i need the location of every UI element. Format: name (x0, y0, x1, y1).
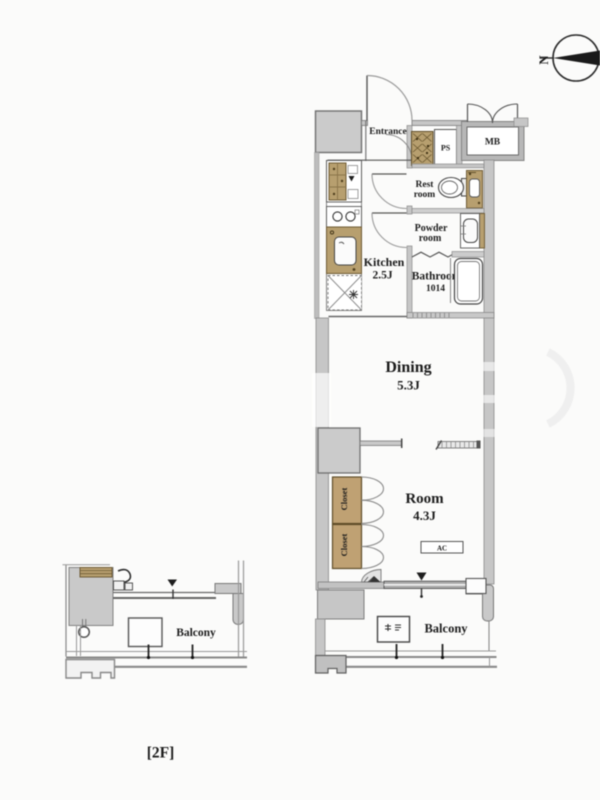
svg-text:Entrance: Entrance (369, 127, 406, 137)
svg-text:5.3J: 5.3J (397, 378, 420, 393)
svg-text:4.3J: 4.3J (413, 508, 436, 523)
svg-text:Closet: Closet (339, 534, 349, 557)
svg-text:AC: AC (437, 545, 447, 553)
svg-text:room: room (414, 190, 436, 200)
svg-text:Dining: Dining (385, 359, 431, 376)
svg-text:Balcony: Balcony (176, 627, 216, 639)
svg-text:PS: PS (441, 144, 451, 153)
svg-text:MB: MB (485, 138, 501, 148)
svg-text:Room: Room (405, 491, 444, 507)
svg-text:N: N (536, 55, 551, 65)
svg-text:2.5J: 2.5J (372, 270, 392, 282)
svg-text:room: room (419, 233, 442, 244)
svg-text:Closet: Closet (339, 488, 349, 511)
svg-text:Balcony: Balcony (424, 622, 468, 636)
svg-text:[2F]: [2F] (147, 745, 175, 762)
svg-text:Rest: Rest (416, 180, 435, 190)
svg-text:Kitchen: Kitchen (364, 255, 405, 269)
svg-text:1014: 1014 (426, 284, 445, 294)
